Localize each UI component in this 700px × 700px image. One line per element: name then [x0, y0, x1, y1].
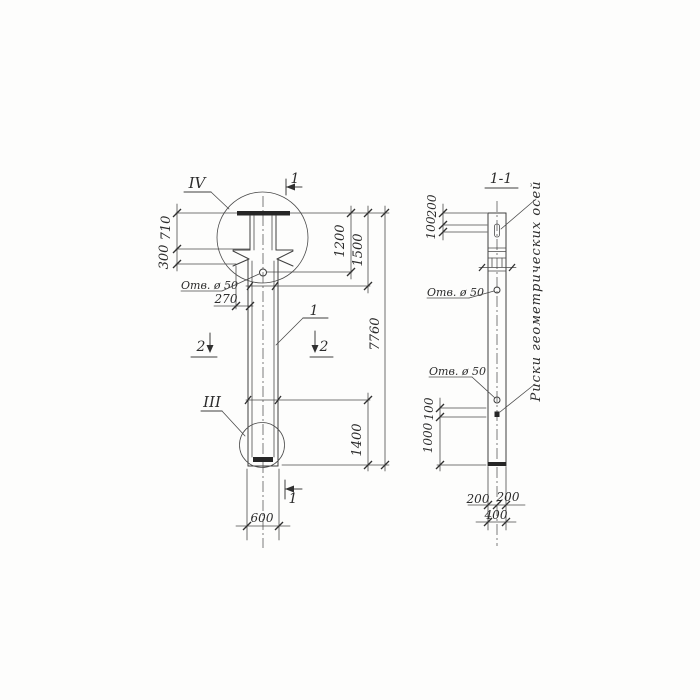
dim-710-300: 710 300 — [157, 204, 250, 271]
column-cap-plate — [237, 211, 290, 216]
dim-1500: 1500 — [351, 206, 372, 293]
position-1-label: 1 — [310, 303, 319, 319]
column-elevation-view: IV III 710 300 Отв. ø 50 — [157, 171, 389, 548]
hole-label-left: Отв. ø 50 — [181, 279, 238, 292]
section-cut-2-right-label: 2 — [319, 339, 329, 355]
dim-200-100-top: 200 100 — [424, 194, 487, 240]
hole-label-lower: Отв. ø 50 — [429, 365, 486, 378]
section-cut-1-top: 1 — [286, 171, 302, 195]
dim-7760-label: 7760 — [368, 317, 383, 350]
section-cut-1-bottom: 1 — [285, 480, 302, 507]
detail-iii-label: III — [202, 393, 222, 411]
dim-100-mid-label: 100 — [422, 397, 436, 420]
hole-callout-section-lower: Отв. ø 50 — [429, 365, 495, 398]
column-bottom-plug — [253, 457, 273, 462]
section-cut-2-right: 2 — [310, 331, 333, 357]
hole-label-upper: Отв. ø 50 — [427, 286, 484, 299]
section-cut-1-bottom-label: 1 — [289, 491, 298, 507]
drawing-sheet: IV III 710 300 Отв. ø 50 — [0, 0, 700, 700]
section-title: 1-1 — [490, 171, 513, 187]
column-section-view: 1-1 Отв. ø 5 — [421, 171, 544, 546]
shaft-joint-line — [245, 396, 370, 404]
dim-1400: 1400 — [350, 393, 372, 471]
dim-100-1000-mid: 100 1000 — [421, 397, 486, 471]
dim-100-top-label: 100 — [424, 216, 438, 239]
axis-riska-square — [495, 412, 500, 418]
dim-400-label: 400 — [484, 508, 508, 522]
dim-200-bottom-left-label: 200 — [466, 492, 490, 506]
technical-drawing-canvas: IV III 710 300 Отв. ø 50 — [0, 0, 700, 700]
dim-1500-label: 1500 — [351, 233, 366, 266]
axes-note-callout: Риски геометрических осей — [500, 180, 544, 412]
dim-200-top-label: 200 — [425, 194, 439, 218]
dim-1400-label: 1400 — [350, 423, 365, 456]
dim-200-bottom-right-label: 200 — [496, 490, 520, 504]
dim-1200-label: 1200 — [333, 224, 348, 257]
dim-bottom-widths: 200 200 400 — [466, 467, 525, 530]
dim-710-label: 710 — [159, 216, 174, 241]
section-cut-2-left: 2 — [191, 333, 217, 357]
dim-270-label: 270 — [214, 292, 238, 306]
section-cut-1-top-label: 1 — [291, 171, 300, 187]
detail-iv-label: IV — [188, 174, 208, 192]
section-cut-2-left-label: 2 — [196, 339, 206, 355]
section-joint-zone — [479, 248, 516, 271]
dim-300-label: 300 — [157, 245, 172, 270]
dim-1000-label: 1000 — [421, 422, 435, 453]
dim-600-label: 600 — [251, 511, 274, 525]
axes-note-label: Риски геометрических осей — [529, 180, 544, 402]
hole-callout-section-upper: Отв. ø 50 — [427, 286, 494, 299]
dim-7760: 7760 — [368, 206, 389, 471]
